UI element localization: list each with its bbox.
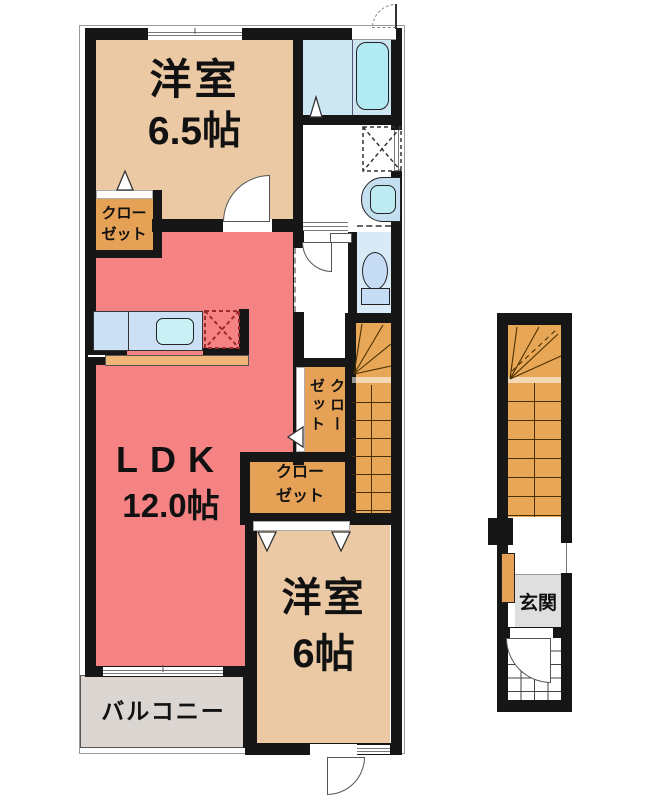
stairs-entrance-center-line	[534, 383, 535, 517]
door-gap-closet-upper-left	[96, 190, 153, 199]
wall	[303, 115, 391, 125]
label-entrance: 玄関	[515, 588, 561, 615]
closet-label-line: ゼット	[93, 224, 155, 245]
wash-basin-bowl	[370, 185, 396, 214]
toilet-tank	[361, 288, 390, 305]
door-gap-bathroom-top	[352, 28, 396, 40]
label-closet-middle: クローゼット	[306, 375, 346, 445]
window-top	[148, 28, 242, 40]
door-gap-closet-middle	[296, 367, 305, 452]
wall	[497, 313, 508, 712]
closet-label-line: クロー	[93, 203, 155, 224]
toilet-door-leaf	[330, 233, 352, 243]
wall	[488, 518, 513, 545]
label-closet-lower: クロー ゼット	[250, 461, 350, 509]
toilet-bowl	[362, 252, 388, 290]
label-balcony: バルコニー	[82, 692, 245, 726]
entrance-edge-line	[515, 574, 561, 575]
room-name: LDK	[86, 438, 256, 482]
kitchen-sink	[156, 318, 194, 345]
wall	[497, 700, 572, 712]
room-size: 12.0帖	[86, 482, 256, 530]
door-leaf-bathroom-exterior	[395, 4, 397, 29]
kitchen-step-strip	[105, 355, 249, 366]
bathtub	[356, 42, 389, 110]
kitchen-counter-divider	[128, 311, 129, 351]
label-room-western-6-5: 洋室 6.5帖	[96, 55, 293, 159]
wall	[245, 513, 257, 755]
wall	[348, 313, 402, 323]
door-arc-room6	[327, 757, 365, 795]
sliding-door-washroom	[303, 222, 348, 231]
room-size: 6.5帖	[96, 105, 293, 159]
wall	[348, 232, 357, 317]
floor-plan: 洋室 6.5帖 クロー ゼット LDK 12.0帖 クローゼット クロー ゼット…	[0, 0, 652, 800]
dashed-opening-toilet	[357, 225, 391, 227]
label-room-western-6: 洋室 6帖	[257, 572, 390, 684]
sliding-door-ldk-hallway	[294, 248, 304, 312]
bathroom-divider	[352, 39, 353, 115]
window-entrance-side	[561, 543, 572, 573]
window-washroom	[391, 130, 402, 171]
door-gap-closet-lower	[253, 521, 350, 531]
stairs-main-center-line	[371, 385, 372, 513]
door-gap-room6	[310, 744, 357, 755]
room-name: 洋室	[257, 572, 390, 624]
room-size: 6帖	[257, 624, 390, 684]
wall	[92, 250, 162, 258]
wall	[293, 28, 303, 232]
closet-label-line: ゼット	[250, 485, 350, 509]
closet-label-vertical: クローゼット	[306, 375, 346, 437]
stairs-main-light-band	[352, 377, 391, 383]
window-balcony	[103, 667, 223, 676]
label-closet-upper-left: クロー ゼット	[93, 203, 155, 245]
door-arc-bathroom-exterior	[372, 4, 396, 28]
closet-label-line: クロー	[250, 461, 350, 485]
door-gap-entrance	[510, 628, 553, 638]
window-room6	[357, 745, 390, 754]
wall	[561, 313, 572, 712]
shoe-cabinet	[501, 553, 515, 603]
label-ldk: LDK 12.0帖	[86, 438, 256, 530]
room-name: 洋室	[96, 55, 293, 105]
